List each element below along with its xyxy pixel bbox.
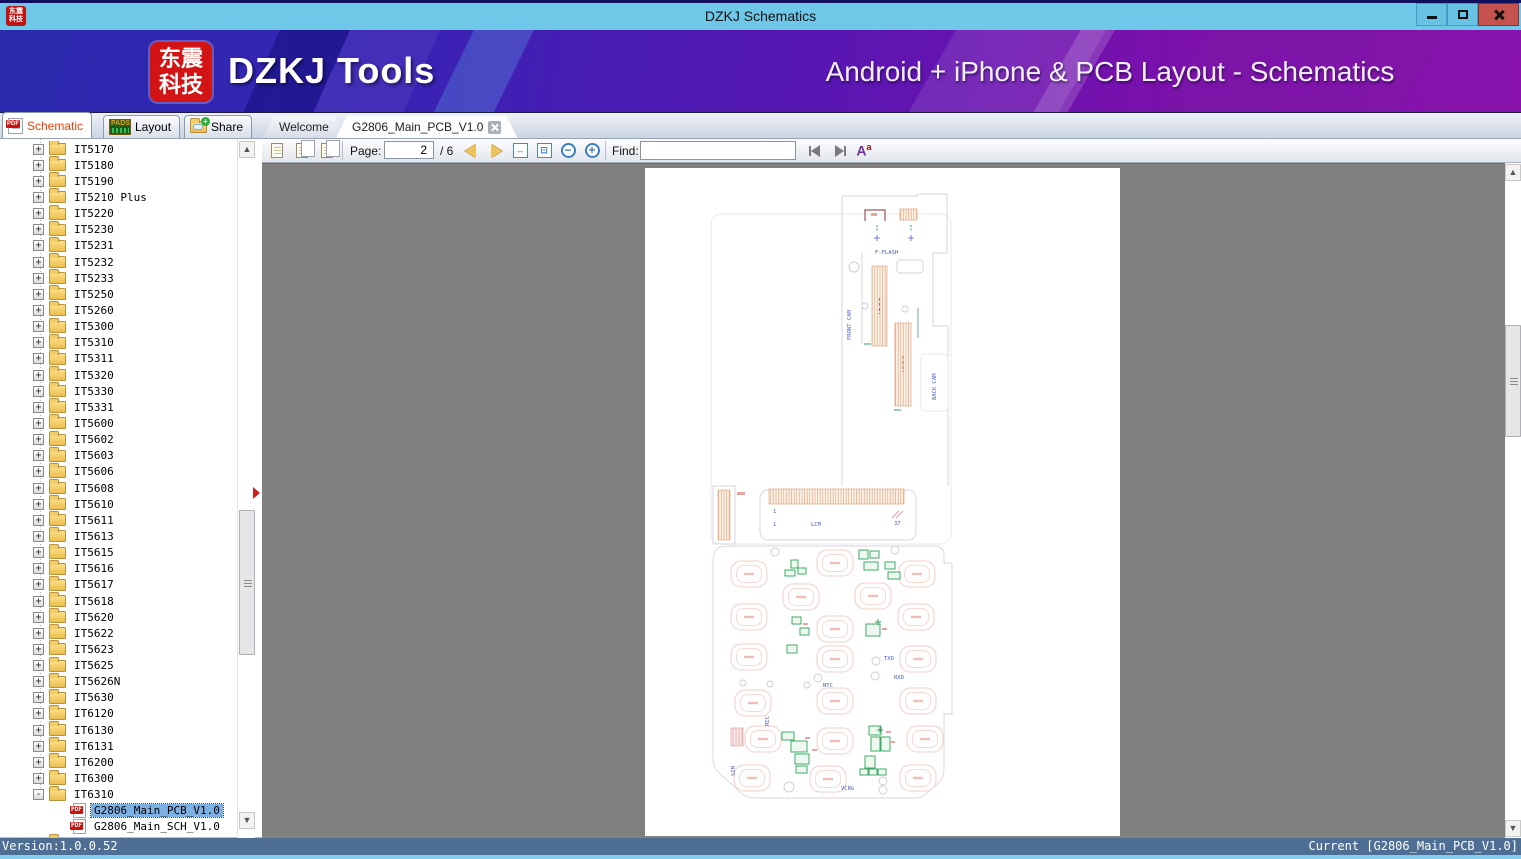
expand-toggle-icon[interactable]: +	[33, 660, 44, 671]
viewer-toolbar: Page: / 6 ↔ ⊡ − + Find: Aa	[262, 139, 1521, 163]
tree-item[interactable]: + IT5180	[0, 157, 236, 173]
tree-item[interactable]: + IT5626N	[0, 674, 236, 690]
tree-item-label: G2806_Main_PCB_V1.0	[91, 804, 223, 817]
maximize-button[interactable]	[1447, 3, 1478, 26]
tree-item[interactable]: + IT5170	[0, 141, 236, 157]
tree-item-label: IT5600	[71, 417, 117, 430]
tree-item[interactable]: + IT5260	[0, 302, 236, 318]
match-case-button[interactable]: Aa	[854, 141, 874, 160]
folder-icon	[49, 417, 66, 429]
tree-item-label: IT6120	[71, 707, 117, 720]
tree-item-label: IT5300	[71, 320, 117, 333]
tree-item[interactable]: + IT5617	[0, 577, 236, 593]
maximize-icon	[1458, 10, 1468, 19]
folder-icon	[49, 337, 66, 349]
tree-item-label: IT6200	[71, 756, 117, 769]
rotate-page-button[interactable]	[317, 141, 337, 160]
title-bar[interactable]: 东震 科技 DZKJ Schematics	[0, 3, 1521, 30]
application-window: 东震 科技 DZKJ Schematics 东震 科技 DZKJ Tools A…	[0, 0, 1521, 859]
expand-toggle-icon[interactable]: +	[33, 483, 44, 494]
tree-item[interactable]: + IT5610	[0, 496, 236, 512]
tree-scroll-up-icon[interactable]: ▲	[239, 141, 255, 158]
tree-item[interactable]: + IT5231	[0, 238, 236, 254]
folder-icon	[49, 676, 66, 688]
find-previous-button[interactable]	[805, 141, 825, 160]
document-scrollbar[interactable]: ▲ ▼	[1505, 163, 1521, 838]
tree-item-label: IT5603	[71, 449, 117, 462]
expand-toggle-icon[interactable]: +	[33, 579, 44, 590]
tree-item[interactable]: + IT5622	[0, 625, 236, 641]
tree-item-label: IT5602	[71, 433, 117, 446]
tree-item[interactable]: + IT5320	[0, 367, 236, 383]
svg-text:SIM: SIM	[731, 765, 737, 776]
document-canvas[interactable]: F-FLASH FRONT CAM BACK CAM	[262, 163, 1505, 838]
folder-icon	[49, 498, 66, 510]
document-scroll-down-icon[interactable]: ▼	[1505, 820, 1521, 837]
expand-toggle-icon[interactable]: +	[33, 596, 44, 607]
expand-toggle-icon[interactable]: +	[33, 466, 44, 477]
expand-toggle-icon[interactable]: +	[33, 337, 44, 348]
zoom-in-icon: +	[585, 143, 600, 158]
expand-toggle-icon[interactable]: +	[33, 208, 44, 219]
tree-item[interactable]: + IT6300	[0, 770, 236, 786]
svg-text:LCM: LCM	[811, 522, 822, 528]
svg-text:F-FLASH: F-FLASH	[875, 250, 898, 256]
tree-item[interactable]: + IT5300	[0, 319, 236, 335]
tree-item-label: IT5220	[71, 207, 117, 220]
expand-toggle-icon[interactable]: +	[33, 434, 44, 445]
brand-tagline: Android + iPhone & PCB Layout - Schemati…	[760, 56, 1460, 88]
find-previous-icon	[811, 145, 820, 157]
tree-item-label: IT5250	[71, 288, 117, 301]
tree-item[interactable]: + IT5606	[0, 464, 236, 480]
window-title: DZKJ Schematics	[0, 8, 1521, 24]
tree-item-label: IT5320	[71, 369, 117, 382]
pdf-page[interactable]: F-FLASH FRONT CAM BACK CAM	[645, 168, 1120, 836]
tree-item-label: IT5230	[71, 223, 117, 236]
folder-icon	[49, 385, 66, 397]
tree-item-label: IT5622	[71, 627, 117, 640]
folder-icon	[49, 530, 66, 542]
folder-icon	[49, 353, 66, 365]
tree-item[interactable]: + IT5623	[0, 641, 236, 657]
tree-item[interactable]: + IT6120	[0, 706, 236, 722]
minimize-button[interactable]	[1416, 3, 1447, 26]
tree-item-label: IT5311	[71, 352, 117, 365]
tab-welcome[interactable]: Welcome	[263, 116, 345, 138]
tree-item-label: IT5618	[71, 595, 117, 608]
expand-toggle-icon[interactable]: +	[33, 144, 44, 155]
tree-item-label: IT5611	[71, 514, 117, 527]
find-label: Find:	[612, 144, 639, 158]
tree-scroll-down-icon[interactable]: ▼	[239, 812, 255, 829]
pdf-file-icon: PDF	[73, 803, 86, 818]
folder-icon	[49, 643, 66, 655]
expand-toggle-icon[interactable]: +	[33, 563, 44, 574]
share-folder-icon: +	[190, 121, 207, 133]
folder-icon	[49, 724, 66, 736]
expand-toggle-icon[interactable]: +	[33, 353, 44, 364]
tab-layout-label: Layout	[135, 120, 171, 134]
folder-icon	[49, 191, 66, 203]
tree-item-label: IT5615	[71, 546, 117, 559]
expand-toggle-icon[interactable]: +	[33, 547, 44, 558]
expand-toggle-icon[interactable]: +	[33, 418, 44, 429]
tree-item[interactable]: + IT5616	[0, 561, 236, 577]
tree-item-label: IT6130	[71, 724, 117, 737]
folder-icon	[49, 143, 66, 155]
close-icon	[1493, 9, 1504, 20]
expand-toggle-icon[interactable]: +	[33, 692, 44, 703]
folder-icon	[49, 401, 66, 413]
tree-item-label: IT5233	[71, 272, 117, 285]
folder-icon	[49, 708, 66, 720]
folder-icon	[49, 627, 66, 639]
match-case-icon: Aa	[856, 142, 871, 159]
tree-item-label: IT5170	[71, 143, 117, 156]
folder-icon	[49, 514, 66, 526]
folder-icon	[49, 369, 66, 381]
tree-item-label: IT5232	[71, 256, 117, 269]
close-button[interactable]	[1478, 3, 1519, 26]
find-next-button[interactable]	[829, 141, 849, 160]
svg-text:NTC: NTC	[823, 683, 833, 689]
folder-icon	[49, 240, 66, 252]
expand-toggle-icon[interactable]: +	[33, 257, 44, 268]
tree-item[interactable]: + IT5250	[0, 286, 236, 302]
expand-toggle-icon[interactable]: +	[33, 386, 44, 397]
folder-icon	[49, 611, 66, 623]
tree-scrollbar-thumb[interactable]	[239, 510, 255, 655]
folder-icon	[49, 789, 66, 801]
tree-item-label: IT5617	[71, 578, 117, 591]
copy-page-icon	[271, 143, 283, 158]
expand-toggle-icon[interactable]: +	[33, 224, 44, 235]
pads-icon: PADS	[109, 119, 131, 135]
folder-icon	[49, 563, 66, 575]
page-total-label: / 6	[440, 144, 453, 158]
folder-icon	[49, 773, 66, 785]
status-bar: Version:1.0.0.52 Current [G2806_Main_PCB…	[0, 838, 1521, 855]
expand-toggle-icon[interactable]: +	[33, 499, 44, 510]
tab-close-icon[interactable]	[488, 121, 501, 134]
tree-item-label: IT5608	[71, 482, 117, 495]
folder-icon	[49, 547, 66, 559]
tree-item-label: IT6310	[71, 788, 117, 801]
tree-item[interactable]: + IT6131	[0, 738, 236, 754]
tree-item[interactable]: + IT5311	[0, 351, 236, 367]
folder-icon	[49, 756, 66, 768]
tree-item[interactable]: + IT5232	[0, 254, 236, 270]
tree-item-label: IT5610	[71, 498, 117, 511]
tab-welcome-label: Welcome	[279, 120, 329, 134]
tree-item[interactable]: PDF G2806_Main_PCB_V1.0	[0, 803, 236, 819]
tree-item[interactable]: PDF G2806_Main_SCH_V1.0	[0, 819, 236, 835]
tree-item[interactable]: + IT5230	[0, 222, 236, 238]
snapshot-icon	[296, 143, 308, 158]
expand-toggle-icon[interactable]: +	[33, 725, 44, 736]
expand-toggle-icon[interactable]: +	[33, 644, 44, 655]
svg-text:BACK CAM: BACK CAM	[932, 373, 938, 400]
folder-icon	[49, 159, 66, 171]
expand-toggle-icon[interactable]: +	[33, 757, 44, 768]
tree-item-label: IT5231	[71, 239, 117, 252]
expand-toggle-icon[interactable]: +	[33, 676, 44, 687]
tree-item[interactable]: + IT5630	[0, 690, 236, 706]
expand-toggle-icon[interactable]: +	[33, 370, 44, 381]
folder-icon	[49, 175, 66, 187]
tab-document-label: G2806_Main_PCB_V1.0	[352, 120, 483, 134]
tree-item-label: IT6131	[71, 740, 117, 753]
previous-page-button[interactable]	[460, 141, 480, 160]
brand-banner: 东震 科技 DZKJ Tools Android + iPhone & PCB …	[0, 30, 1521, 113]
tree-item[interactable]: + IT5310	[0, 335, 236, 351]
tree-item[interactable]: + IT5608	[0, 480, 236, 496]
version-label: Version:1.0.0.52	[2, 839, 118, 853]
tab-schematic-label: Schematic	[27, 119, 83, 133]
tree-item-label: IT5623	[71, 643, 117, 656]
pdf-icon: PDF	[8, 118, 23, 134]
find-next-icon	[835, 145, 844, 157]
tree-item[interactable]: +	[0, 835, 236, 837]
folder-icon	[49, 321, 66, 333]
tree-item[interactable]: + IT5330	[0, 383, 236, 399]
model-tree: + IT5170 + IT5180 + IT5190 +	[0, 141, 236, 837]
tree-item-label: IT5330	[71, 385, 117, 398]
expand-toggle-icon[interactable]: +	[33, 289, 44, 300]
expand-toggle-icon[interactable]: +	[33, 160, 44, 171]
pdf-file-icon: PDF	[73, 819, 86, 834]
fit-width-icon: ↔	[513, 143, 528, 158]
expand-toggle-icon[interactable]: +	[33, 515, 44, 526]
tab-share-label: Share	[211, 120, 243, 134]
folder-icon	[49, 208, 66, 220]
tree-item[interactable]: + IT5220	[0, 206, 236, 222]
expand-toggle-icon[interactable]: +	[33, 273, 44, 284]
expand-toggle-icon[interactable]: +	[33, 305, 44, 316]
tab-bar: PDF Schematic PADS Layout + Share Welcom…	[0, 113, 1521, 139]
minimize-icon	[1427, 16, 1437, 19]
tree-item[interactable]: + IT6130	[0, 722, 236, 738]
schematic-tree-panel: + IT5170 + IT5180 + IT5190 +	[0, 139, 262, 838]
expand-toggle-icon[interactable]: +	[33, 773, 44, 784]
tree-item[interactable]: + IT5611	[0, 512, 236, 528]
folder-icon	[49, 595, 66, 607]
tree-item[interactable]: + IT5618	[0, 593, 236, 609]
tree-item-label: IT5310	[71, 336, 117, 349]
expand-toggle-icon[interactable]: +	[33, 628, 44, 639]
copy-page-button[interactable]	[267, 141, 287, 160]
tree-item-label: IT5180	[71, 159, 117, 172]
previous-page-icon	[465, 144, 476, 158]
tree-item-label: IT5620	[71, 611, 117, 624]
folder-icon	[49, 434, 66, 446]
document-scrollbar-thumb[interactable]	[1505, 325, 1521, 437]
expand-toggle-icon[interactable]: -	[33, 789, 44, 800]
brand-name: DZKJ Tools	[228, 50, 435, 92]
tree-item-label: IT5625	[71, 659, 117, 672]
tab-schematic[interactable]: PDF Schematic	[2, 112, 92, 138]
current-document-label: Current [G2806_Main_PCB_V1.0]	[1308, 839, 1518, 853]
svg-text:TXD: TXD	[884, 656, 894, 662]
tree-item-label: IT5606	[71, 465, 117, 478]
expand-toggle-icon[interactable]: +	[33, 176, 44, 187]
folder-icon	[49, 692, 66, 704]
tree-item[interactable]: - IT6310	[0, 787, 236, 803]
expand-toggle-icon[interactable]: +	[33, 612, 44, 623]
tree-item[interactable]: + IT5615	[0, 545, 236, 561]
tree-item-label: IT6300	[71, 772, 117, 785]
tab-layout[interactable]: PADS Layout	[103, 115, 180, 138]
find-input[interactable]	[640, 141, 796, 160]
snapshot-button[interactable]	[292, 141, 312, 160]
fit-width-button[interactable]: ↔	[510, 141, 530, 160]
tree-item-label: IT5331	[71, 401, 117, 414]
tree-item-label: IT5626N	[71, 675, 123, 688]
fit-page-button[interactable]: ⊡	[534, 141, 554, 160]
folder-icon	[49, 482, 66, 494]
tree-item-label: IT5616	[71, 562, 117, 575]
next-page-button[interactable]	[486, 141, 506, 160]
tree-item-label: G2806_Main_SCH_V1.0	[91, 820, 223, 833]
brand-logo: 东震 科技	[150, 42, 212, 102]
svg-text:MIC: MIC	[765, 716, 771, 726]
folder-icon	[49, 740, 66, 752]
fit-page-icon: ⊡	[537, 143, 552, 158]
folder-icon	[49, 466, 66, 478]
expand-toggle-icon[interactable]: +	[33, 450, 44, 461]
tree-item[interactable]: + IT5620	[0, 609, 236, 625]
folder-icon	[49, 272, 66, 284]
tree-item[interactable]: + IT5600	[0, 415, 236, 431]
page-number-input[interactable]	[384, 141, 434, 159]
tree-item[interactable]: + IT5602	[0, 432, 236, 448]
tree-item[interactable]: + IT5233	[0, 270, 236, 286]
folder-icon	[49, 256, 66, 268]
expand-toggle-icon[interactable]: +	[33, 321, 44, 332]
svg-text:1: 1	[773, 522, 776, 528]
tree-item-label: IT5613	[71, 530, 117, 543]
svg-text:37: 37	[894, 521, 901, 527]
tree-item[interactable]: + IT5190	[0, 173, 236, 189]
expand-toggle-icon[interactable]: +	[33, 741, 44, 752]
rotate-page-icon	[321, 143, 333, 158]
next-page-icon	[491, 144, 502, 158]
svg-text:RXD: RXD	[894, 675, 904, 681]
folder-icon	[49, 224, 66, 236]
expand-toggle-icon[interactable]: +	[33, 192, 44, 203]
tree-item-label: IT5190	[71, 175, 117, 188]
zoom-in-button[interactable]: +	[582, 141, 602, 160]
svg-text:FRONT CAM: FRONT CAM	[847, 310, 853, 340]
tree-item-label: IT5260	[71, 304, 117, 317]
tab-share[interactable]: + Share	[184, 115, 252, 138]
svg-text:VCRG: VCRG	[841, 786, 854, 792]
folder-icon	[49, 450, 66, 462]
svg-text:1: 1	[773, 509, 776, 515]
tree-item-label: IT5630	[71, 691, 117, 704]
tab-document-g2806[interactable]: G2806_Main_PCB_V1.0	[336, 116, 517, 138]
page-label: Page:	[350, 144, 381, 158]
expand-toggle-icon[interactable]: +	[33, 402, 44, 413]
folder-icon	[49, 579, 66, 591]
zoom-out-button[interactable]: −	[558, 141, 578, 160]
status-bar-strip	[0, 855, 1521, 859]
tree-item[interactable]: + IT6200	[0, 754, 236, 770]
tree-item-label: IT5210 Plus	[71, 191, 150, 204]
pcb-drawing: F-FLASH FRONT CAM BACK CAM	[645, 168, 1120, 836]
expand-toggle-icon[interactable]: +	[33, 708, 44, 719]
tree-item[interactable]: + IT5613	[0, 528, 236, 544]
folder-icon	[49, 660, 66, 672]
expand-toggle-icon[interactable]: +	[33, 240, 44, 251]
zoom-out-icon: −	[561, 143, 576, 158]
tree-item[interactable]: + IT5625	[0, 658, 236, 674]
expand-toggle-icon[interactable]: +	[33, 531, 44, 542]
tree-item[interactable]: + IT5331	[0, 399, 236, 415]
document-scroll-up-icon[interactable]: ▲	[1505, 164, 1521, 181]
folder-icon	[49, 304, 66, 316]
panel-collapse-arrow-icon[interactable]	[253, 487, 260, 499]
tree-item[interactable]: + IT5210 Plus	[0, 189, 236, 205]
folder-icon	[49, 288, 66, 300]
tree-item[interactable]: + IT5603	[0, 448, 236, 464]
